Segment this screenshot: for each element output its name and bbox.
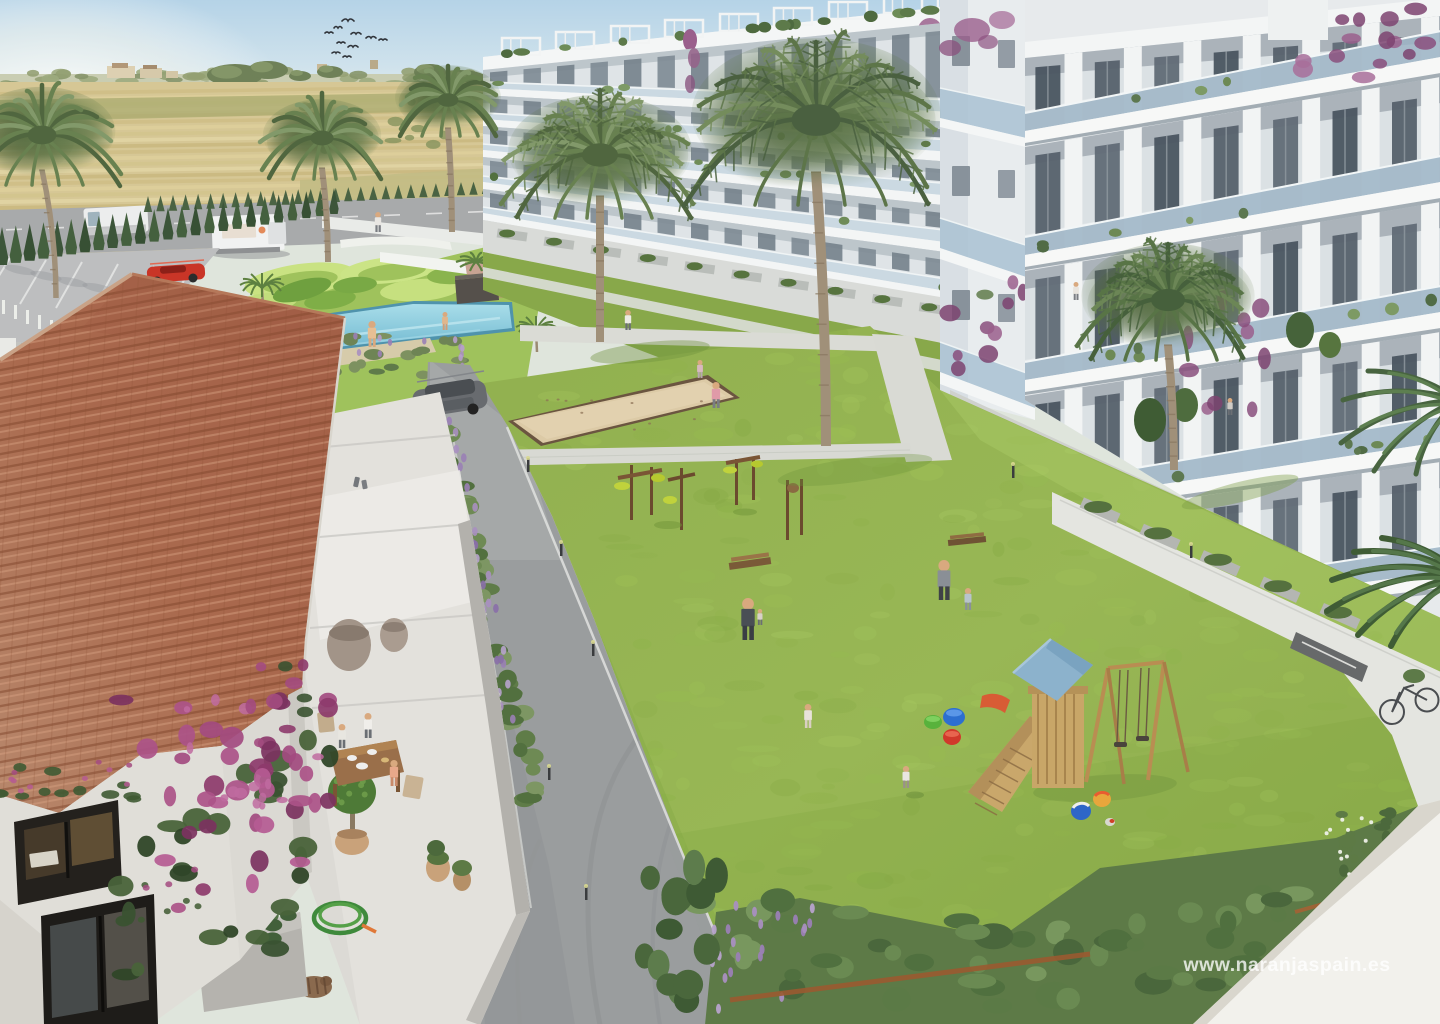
svg-text:www.naranjaspain.es: www.naranjaspain.es (1182, 954, 1390, 976)
